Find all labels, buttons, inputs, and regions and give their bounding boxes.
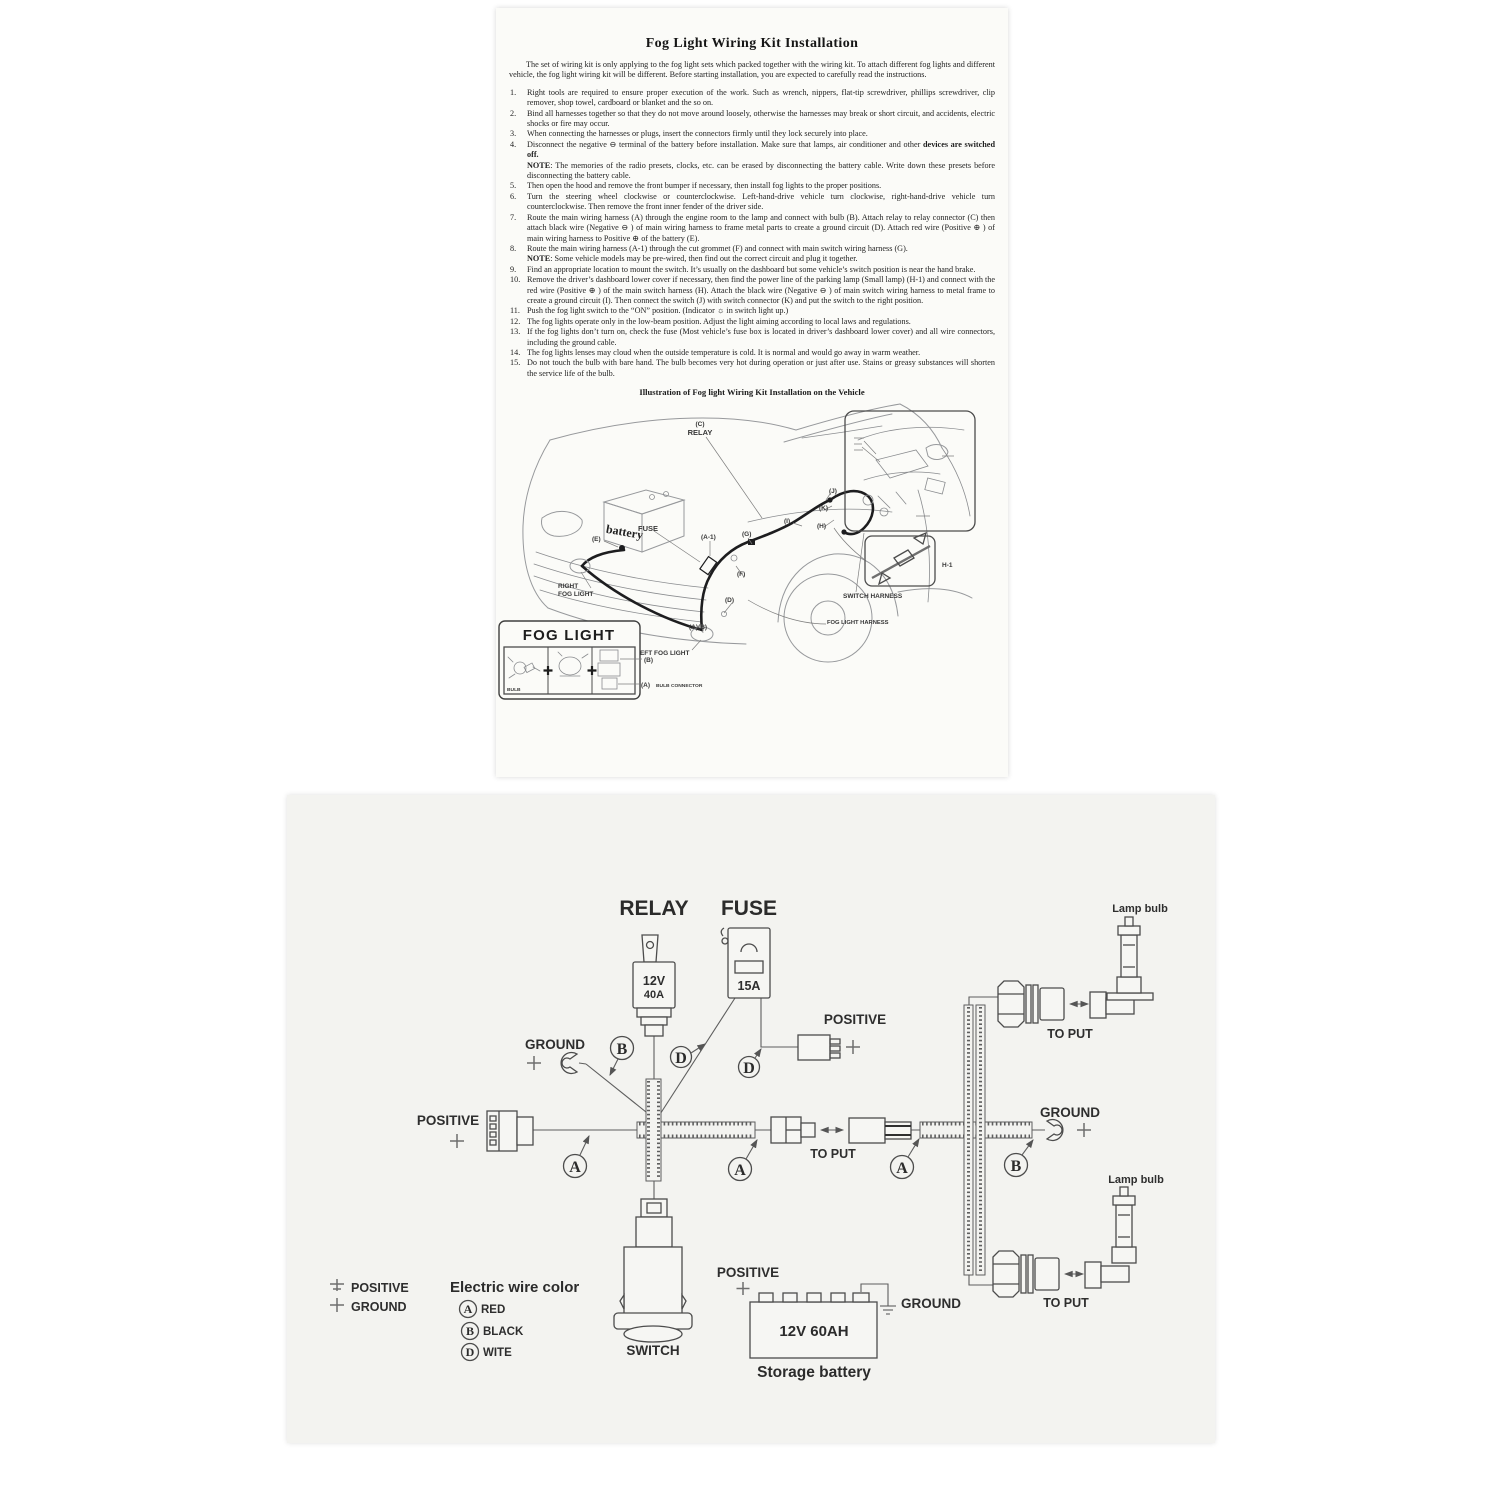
storage-battery: POSITIVE 12V 60AH Storage battery GROUND — [717, 1265, 961, 1381]
code-a-3: A — [891, 1139, 920, 1179]
positive-connector-left: POSITIVE — [417, 1111, 533, 1151]
legend-entry-d: D WITE — [462, 1344, 513, 1361]
illustration-title: Illustration of Fog light Wiring Kit Ins… — [509, 387, 995, 397]
svg-text:A: A — [569, 1159, 581, 1176]
list-item: 11.Push the fog light switch to the “ON”… — [509, 306, 995, 316]
fork-terminal-icon — [1047, 1120, 1063, 1141]
svg-text:RED: RED — [481, 1304, 505, 1316]
relay-title: RELAY — [619, 897, 688, 920]
vehicle-illustration: battery — [496, 400, 1008, 702]
legend-entry-a: A RED — [460, 1301, 506, 1318]
list-item: 8.Route the main wiring harness (A-1) th… — [509, 244, 995, 265]
wiring-diagram-sheet: RELAY 12V 40A FUSE 15A POSITIVE — [287, 795, 1215, 1443]
label-g: (G) — [742, 531, 751, 538]
lamp-bulb-label-bottom: Lamp bulb — [1108, 1174, 1164, 1186]
page: { "instruction_sheet": { "title": "Fog L… — [0, 0, 1500, 1500]
label-k: (K) — [819, 505, 828, 512]
list-item: 7.Route the main wiring harness (A) thro… — [509, 213, 995, 244]
leader-lines — [581, 437, 864, 650]
intro-paragraph: The set of wiring kit is only applying t… — [509, 60, 995, 81]
legend-entry-b: B BLACK — [462, 1323, 524, 1340]
label-switch-harness: SWITCH HARNESS — [843, 593, 903, 600]
to-put-label-middle: TO PUT — [810, 1147, 856, 1161]
label-c: (C) — [695, 421, 704, 428]
h1-inset: H-1 — [834, 528, 953, 586]
legend-title: Electric wire color — [450, 1279, 579, 1296]
svg-text:A: A — [734, 1162, 746, 1179]
svg-text:B: B — [466, 1324, 474, 1338]
lamp-bulb-label-top: Lamp bulb — [1112, 903, 1168, 915]
switch-label: SWITCH — [626, 1343, 679, 1358]
svg-text:D: D — [675, 1050, 687, 1067]
relay-volts: 12V — [643, 974, 666, 988]
label-fuse: FUSE — [638, 524, 658, 533]
legend-ground-symbol-icon — [330, 1298, 344, 1312]
lamp-assembly-top: Lamp bulb TO PUT — [998, 903, 1168, 1041]
label-d: (D) — [725, 597, 734, 604]
fuse-title: FUSE — [721, 897, 777, 920]
legend-positive-label: POSITIVE — [351, 1281, 409, 1295]
code-b-left: B — [610, 1037, 634, 1076]
ground-right: GROUND — [1040, 1105, 1100, 1141]
h1-label: H-1 — [942, 562, 953, 569]
label-f: (F) — [737, 571, 745, 578]
lamp-assembly-bottom: Lamp bulb TO PUT — [993, 1174, 1164, 1310]
battery-illustration: battery — [604, 490, 684, 552]
list-item: 14.The fog lights lenses may cloud when … — [509, 348, 995, 358]
svg-text:A: A — [464, 1302, 473, 1316]
list-item: 1.Right tools are required to ensure pro… — [509, 88, 995, 109]
fog-light-box: FOG LIGHT BULB — [499, 621, 703, 699]
list-item: 5.Then open the hood and remove the fron… — [509, 181, 995, 191]
to-put-label-bottom: TO PUT — [1043, 1296, 1089, 1310]
label-left-fog: LEFT FOG LIGHT — [636, 650, 689, 657]
label-ab: (A)(B) — [689, 624, 707, 631]
positive-label-top: POSITIVE — [824, 1012, 886, 1027]
list-item: 4.Disconnect the negative ⊖ terminal of … — [509, 140, 995, 182]
svg-text:BLACK: BLACK — [483, 1326, 524, 1338]
label-relay: RELAY — [688, 428, 713, 437]
label-h: (H) — [817, 523, 826, 530]
svg-text:D: D — [743, 1060, 755, 1077]
label-right-fog-1: RIGHT — [558, 583, 578, 590]
label-fog-light-harness: FOG LIGHT HARNESS — [827, 620, 889, 626]
positive-label-bottom: POSITIVE — [717, 1265, 779, 1280]
code-a-1: A — [564, 1136, 590, 1178]
relay-component: RELAY 12V 40A — [619, 897, 688, 1036]
label-a1: (A-1) — [701, 534, 716, 541]
legend-positive-symbol-icon — [330, 1279, 344, 1291]
label-j: (J) — [829, 488, 837, 495]
list-item: 12.The fog lights operate only in the lo… — [509, 317, 995, 327]
code-d-1: D — [671, 1044, 706, 1068]
label-i: (I) — [784, 518, 790, 525]
code-d-2: D — [739, 1049, 762, 1078]
list-item: 13.If the fog lights don’t turn on, chec… — [509, 327, 995, 348]
label-a-connector: (A) — [641, 682, 650, 689]
ground-label-left: GROUND — [525, 1037, 585, 1052]
relay-amps: 40A — [644, 989, 664, 1001]
fork-terminal-icon — [561, 1053, 577, 1074]
list-item: 2.Bind all harnesses together so that th… — [509, 109, 995, 130]
svg-text:WITE: WITE — [483, 1347, 512, 1359]
to-put-label-top: TO PUT — [1047, 1027, 1093, 1041]
battery-ground-symbol-icon — [880, 1306, 896, 1314]
svg-text:B: B — [1011, 1158, 1022, 1175]
label-e: (E) — [592, 536, 601, 543]
legend-ground-label: GROUND — [351, 1300, 407, 1314]
fog-light-box-title: FOG LIGHT — [523, 627, 615, 644]
svg-text:B: B — [617, 1041, 628, 1058]
svg-text:A: A — [896, 1160, 908, 1177]
label-bulb-connector: BULB CONNECTOR — [656, 683, 703, 689]
instruction-list: 1.Right tools are required to ensure pro… — [509, 88, 995, 379]
connector-pair-middle: TO PUT — [771, 1117, 911, 1161]
ground-label-right: GROUND — [1040, 1105, 1100, 1120]
svg-text:D: D — [466, 1345, 475, 1359]
document-body: The set of wiring kit is only applying t… — [496, 60, 1008, 398]
positive-label-left: POSITIVE — [417, 1113, 479, 1128]
ground-symbol-icon — [1077, 1123, 1091, 1137]
switch-component: SWITCH — [614, 1199, 692, 1358]
ground-label-bottom: GROUND — [901, 1296, 961, 1311]
note-line: NOTE: Some vehicle models may be pre-wir… — [527, 254, 858, 263]
fuse-amps: 15A — [738, 979, 761, 993]
list-item: 9.Find an appropriate location to mount … — [509, 265, 995, 275]
list-item: 15.Do not touch the bulb with bare hand.… — [509, 358, 995, 379]
code-b-right: B — [1005, 1140, 1034, 1177]
ground-symbol-icon — [527, 1056, 541, 1070]
positive-symbol-icon — [846, 1040, 860, 1054]
legend: POSITIVE GROUND Electric wire color A RE… — [330, 1279, 579, 1361]
page-title: Fog Light Wiring Kit Installation — [496, 36, 1008, 52]
note-line: NOTE: The memories of the radio presets,… — [527, 161, 995, 180]
bulb-label: BULB — [507, 687, 521, 693]
list-item: 6.Turn the steering wheel clockwise or c… — [509, 192, 995, 213]
list-item: 10.Remove the driver’s dashboard lower c… — [509, 275, 995, 306]
code-a-2: A — [729, 1140, 758, 1181]
list-item: 3.When connecting the harnesses or plugs… — [509, 129, 995, 139]
instruction-sheet: Fog Light Wiring Kit Installation The se… — [496, 8, 1008, 777]
wiring-diagram: RELAY 12V 40A FUSE 15A POSITIVE — [287, 795, 1215, 1443]
positive-symbol-icon — [450, 1134, 464, 1148]
label-right-fog-2: FOG LIGHT — [558, 591, 593, 598]
ground-left: GROUND — [525, 1037, 586, 1074]
battery-rating: 12V 60AH — [779, 1323, 848, 1340]
wiring-harness-sketch — [570, 491, 873, 641]
battery-caption: Storage battery — [757, 1364, 871, 1381]
label-b-connector: (B) — [644, 657, 653, 664]
fuse-component: FUSE 15A — [721, 897, 777, 998]
positive-symbol-icon — [737, 1282, 750, 1295]
positive-connector-top: POSITIVE — [798, 1012, 886, 1060]
fog-light-harness-tube — [964, 1005, 985, 1275]
